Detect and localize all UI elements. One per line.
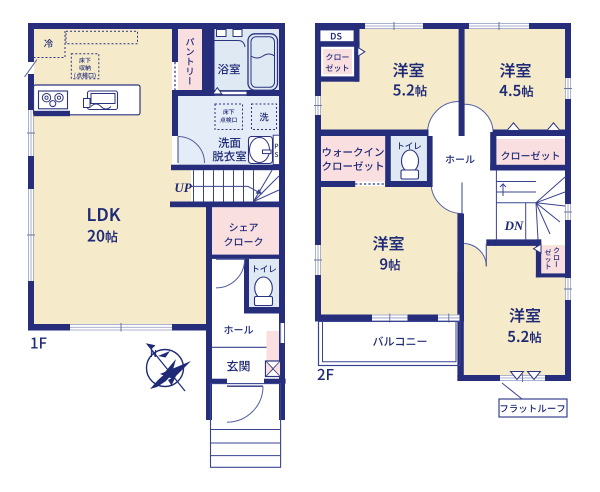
svg-text:DN: DN [504, 218, 524, 233]
svg-text:UP: UP [174, 180, 192, 195]
